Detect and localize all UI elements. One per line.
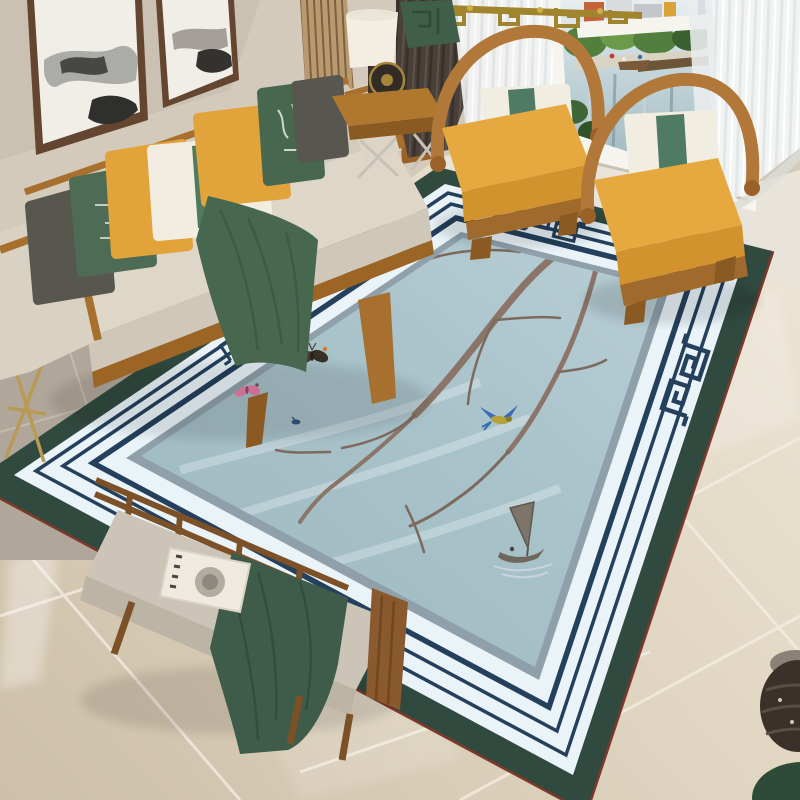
decor-disc-center bbox=[381, 74, 393, 86]
lamp-shade-top bbox=[346, 9, 398, 21]
living-room-photo bbox=[0, 0, 800, 800]
scene-canvas bbox=[0, 0, 800, 800]
pillow-gray-right bbox=[296, 80, 344, 158]
cup-inner bbox=[202, 574, 218, 590]
